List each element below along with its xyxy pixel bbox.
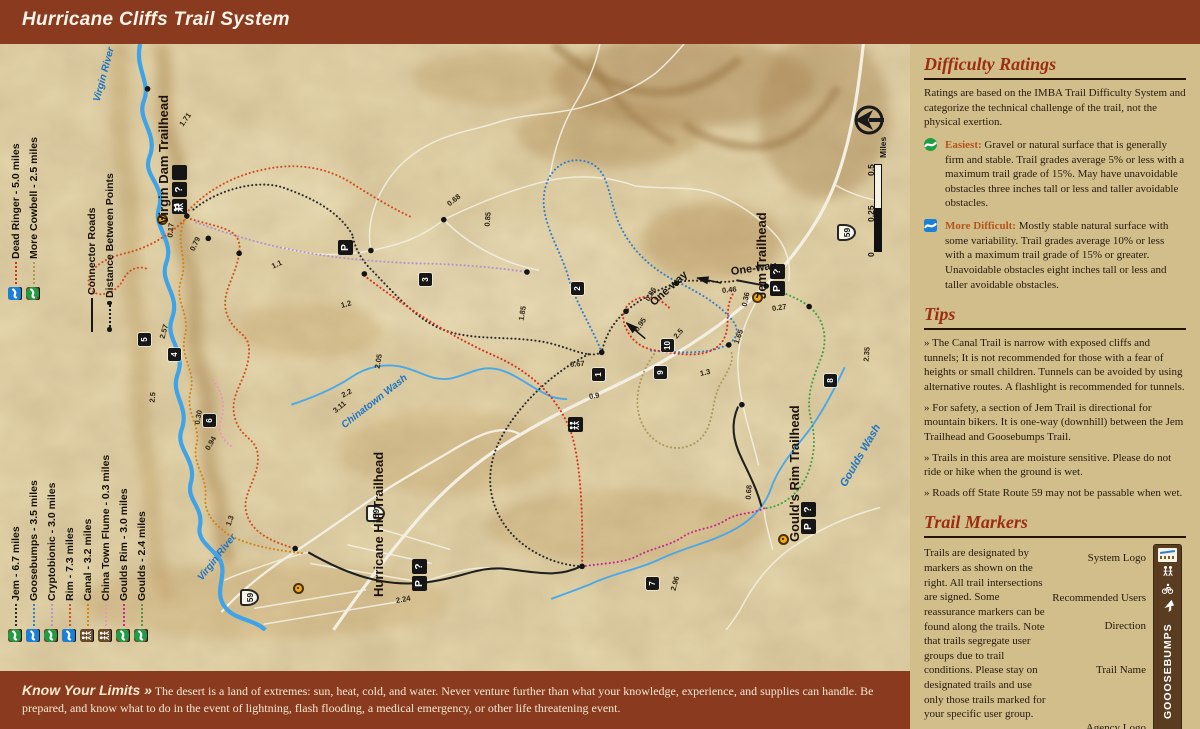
- distance-label: 2.35: [862, 347, 872, 362]
- legend-trail-line-sample: [33, 604, 35, 626]
- map-marker-10: 10: [661, 339, 674, 352]
- legend-trail-label: Cryptobionic - 3.0 miles: [46, 483, 58, 601]
- distance-label: 1.85: [517, 305, 528, 321]
- tip-item: » Roads off State Route 59 may not be pa…: [924, 486, 1186, 501]
- trailhead-label-hurricane-hill-trailhead: Hurricane Hill Trailhead: [371, 452, 386, 597]
- legend-trail-line-sample: [87, 604, 89, 626]
- distance-label: 1.3: [699, 367, 711, 378]
- legend-trail-label: Goulds Rim - 3.0 miles: [118, 488, 130, 601]
- more-difficult-icon: [924, 219, 937, 292]
- tip-item: » For safety, a section of Jem Trail is …: [924, 401, 1186, 445]
- know-your-limits-label: Know Your Limits »: [22, 682, 152, 698]
- legend-item-trail-10: 10More Cowbell - 2.5 miles: [26, 137, 41, 300]
- legend-item-trail-9: 9Dead Ringer - 5.0 miles: [8, 143, 23, 300]
- difficulty-level-more-difficult: More Difficult: Mostly stable natural su…: [924, 219, 1186, 292]
- trail-name-text: GOOOSEBUMPS: [1162, 617, 1174, 726]
- trail-map: 12345678910P595959Virgin Dam TrailheadP?…: [0, 44, 910, 671]
- water-label: Goulds Wash: [838, 422, 883, 489]
- label-agency-logo: Agency Logo: [1086, 722, 1146, 729]
- map-marker-1: 1: [592, 368, 605, 381]
- distance-label: 0.46: [722, 284, 737, 294]
- map-marker-8: 8: [824, 374, 837, 387]
- map-marker-7: 7: [646, 577, 659, 590]
- trailhead-icons-hurricane-hill-trailhead: P?: [412, 559, 427, 591]
- distance-label: 0.17: [166, 223, 176, 238]
- legend-trail-line-sample: [15, 262, 17, 284]
- map-marker-5: 5: [138, 333, 151, 346]
- distance-label: 1.71: [177, 111, 193, 128]
- legend-trail-line-sample: [15, 604, 17, 626]
- distance-label: 2.5: [672, 327, 686, 341]
- distance-label: 2.96: [669, 575, 681, 591]
- easiest-label: Easiest:: [945, 139, 982, 151]
- water-label: Chinatown Wash: [340, 373, 410, 431]
- legend-trail-label: Goosebumps - 3.5 miles: [28, 480, 40, 601]
- map-marker-2: 2: [571, 282, 584, 295]
- difficulty-intro: Ratings are based on the IMBA Trail Diff…: [924, 86, 1186, 130]
- distance-label: 2.05: [373, 353, 384, 369]
- difficulty-ratings-title: Difficulty Ratings: [924, 54, 1186, 80]
- trail-marker-post: GOOOSEBUMPS: [1153, 544, 1182, 729]
- distance-label: 0.36: [740, 291, 752, 307]
- distance-label: 2.5: [148, 392, 158, 403]
- distance-label: 1.65: [732, 328, 745, 345]
- footer-bar: Know Your Limits » The desert is a land …: [0, 671, 910, 729]
- legend-trail-label: China Town Flume - 0.3 miles: [100, 455, 112, 601]
- trailhead-label-virgin-dam-trailhead: Virgin Dam Trailhead: [156, 95, 171, 224]
- distance-label: 0.94: [203, 435, 218, 452]
- label-recommended-users: Recommended Users: [1052, 592, 1146, 604]
- legend-trail-line-sample: [141, 604, 143, 626]
- distance-label: 2.2: [340, 387, 353, 400]
- difficulty-ratings-section: Difficulty Ratings Ratings are based on …: [924, 54, 1186, 292]
- legend-item-distance-between-points: Distance Between Points: [102, 173, 117, 332]
- distance-label: 1.2: [340, 298, 352, 309]
- more-difficult-label: More Difficult:: [945, 220, 1016, 232]
- scale-unit-label: Miles: [878, 137, 888, 158]
- hurricane-cliffs-trail-map-page: 12345678910P595959Virgin Dam TrailheadP?…: [0, 0, 1200, 729]
- legend-item-trail-8: 8Goulds - 2.4 miles: [134, 511, 149, 642]
- easiest-icon: [924, 138, 937, 211]
- parking-icon: P: [338, 240, 353, 255]
- scale-tick-05: 0.5: [866, 164, 876, 176]
- label-trail-name: Trail Name: [1096, 664, 1146, 676]
- label-system-logo: System Logo: [1088, 552, 1146, 564]
- tips-section: Tips » The Canal Trail is narrow with ex…: [924, 304, 1186, 500]
- label-direction: Direction: [1104, 620, 1146, 632]
- legend-item-trail-6: 6China Town Flume - 0.3 miles: [98, 455, 113, 642]
- legend-trail-label: Goulds - 2.4 miles: [136, 511, 148, 601]
- trail-markers-body: Trails are designated by markers as show…: [924, 546, 1052, 729]
- tip-item: » The Canal Trail is narrow with exposed…: [924, 336, 1186, 395]
- distance-label: 2.24: [395, 594, 411, 605]
- legend-trail-line-sample: [123, 604, 125, 626]
- route-59-shield: 59: [240, 589, 259, 606]
- distance-sample: [107, 301, 112, 332]
- distance-label: 0.68: [445, 192, 462, 208]
- legend-item-trail-7: 7Goulds Rim - 3.0 miles: [116, 488, 131, 642]
- legend-item-trail-2: 2Goosebumps - 3.5 miles: [26, 480, 41, 642]
- distance-label: 0.68: [744, 485, 754, 500]
- legend-trail-line-sample: [105, 604, 107, 626]
- legend-item-connector-roads: Connector Roads: [84, 207, 99, 332]
- distance-label: 2.57: [158, 323, 170, 339]
- legend-trail-line-sample: [51, 604, 53, 626]
- map-marker-3: 3: [419, 273, 432, 286]
- page-title: Hurricane Cliffs Trail System: [22, 9, 290, 31]
- distance-label: 0.27: [771, 302, 787, 313]
- water-label: Virgin River: [92, 46, 117, 103]
- trailhead-icons-gould-s-rim-trailhead: P?: [801, 502, 816, 534]
- restroom-icon: [568, 417, 583, 432]
- bike-icon: [1160, 580, 1175, 597]
- legend-trail-line-sample: [69, 604, 71, 626]
- distance-label: 3.11: [331, 399, 348, 415]
- map-marker-9: 9: [654, 366, 667, 379]
- tips-title: Tips: [924, 304, 1186, 330]
- distance-label: 1.1: [270, 258, 283, 271]
- trail-marker-diagram: System Logo Recommended Users Direction …: [1058, 544, 1186, 729]
- trailhead-label-jem-trailhead: Jem Trailhead: [754, 212, 769, 299]
- trailhead-icons-virgin-dam-trailhead: P?: [172, 165, 187, 214]
- distance-label: 0.9: [588, 391, 600, 401]
- direction-pointer-icon: [1161, 599, 1175, 613]
- route-59-shield: 59: [837, 224, 856, 241]
- difficulty-level-easiest: Easiest: Gravel or natural surface that …: [924, 138, 1186, 211]
- scale-tick-025: 0.25: [866, 205, 876, 222]
- trail-markers-title: Trail Markers: [924, 512, 1186, 538]
- legend-item-trail-3: 3Cryptobionic - 3.0 miles: [44, 483, 59, 642]
- legend-trail-label: More Cowbell - 2.5 miles: [28, 137, 40, 259]
- legend-item-trail-1: 1Jem - 6.7 miles: [8, 526, 23, 642]
- connector-road-line-sample: [91, 298, 93, 332]
- distance-label: 1.3: [224, 514, 236, 527]
- system-logo-icon: [1158, 548, 1177, 562]
- hikers-icon: [1161, 562, 1175, 580]
- trailhead-dot-hurricane-hill-trailhead: [293, 583, 304, 594]
- header-bar: Hurricane Cliffs Trail System: [0, 0, 1200, 44]
- legend-trail-label: Jem - 6.7 miles: [10, 526, 22, 601]
- legend-trail-line-sample: [33, 262, 35, 284]
- map-marker-6: 6: [203, 414, 216, 427]
- legend-trail-label: Rim - 7.3 miles: [64, 527, 76, 601]
- sidebar: Difficulty Ratings Ratings are based on …: [910, 44, 1200, 729]
- trailhead-label-gould-s-rim-trailhead: Gould's Rim Trailhead: [787, 405, 802, 542]
- legend-trail-label: Dead Ringer - 5.0 miles: [10, 143, 22, 259]
- trail-markers-section: Trail Markers Trails are designated by m…: [924, 512, 1186, 729]
- distance-label: 0.85: [483, 212, 493, 227]
- distance-label: 0.79: [188, 235, 202, 252]
- scale-tick-0: 0: [866, 252, 876, 257]
- distance-label: 0.67: [570, 359, 585, 369]
- legend-item-trail-5: 5Canal - 3.2 miles: [80, 519, 95, 642]
- water-label: Virgin River: [196, 532, 239, 583]
- map-marker-4: 4: [168, 348, 181, 361]
- legend-item-trail-4: 4Rim - 7.3 miles: [62, 527, 77, 642]
- legend-trail-label: Canal - 3.2 miles: [82, 519, 94, 601]
- tip-item: » Trails in this area are moisture sensi…: [924, 451, 1186, 480]
